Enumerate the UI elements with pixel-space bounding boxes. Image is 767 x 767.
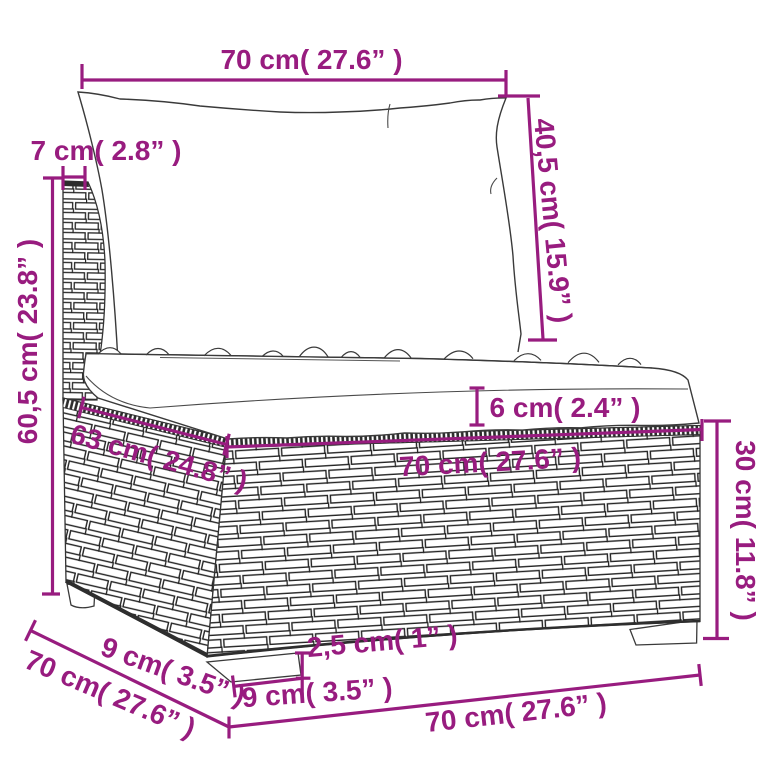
svg-text:70 cm( 27.6” ): 70 cm( 27.6” ) [220, 44, 402, 75]
svg-text:30 cm( 11.8” ): 30 cm( 11.8” ) [730, 440, 761, 621]
svg-text:6 cm( 2.4” ): 6 cm( 2.4” ) [490, 392, 641, 423]
svg-text:7 cm( 2.8” ): 7 cm( 2.8” ) [31, 135, 182, 166]
svg-text:60,5 cm( 23.8” ): 60,5 cm( 23.8” ) [12, 239, 43, 444]
